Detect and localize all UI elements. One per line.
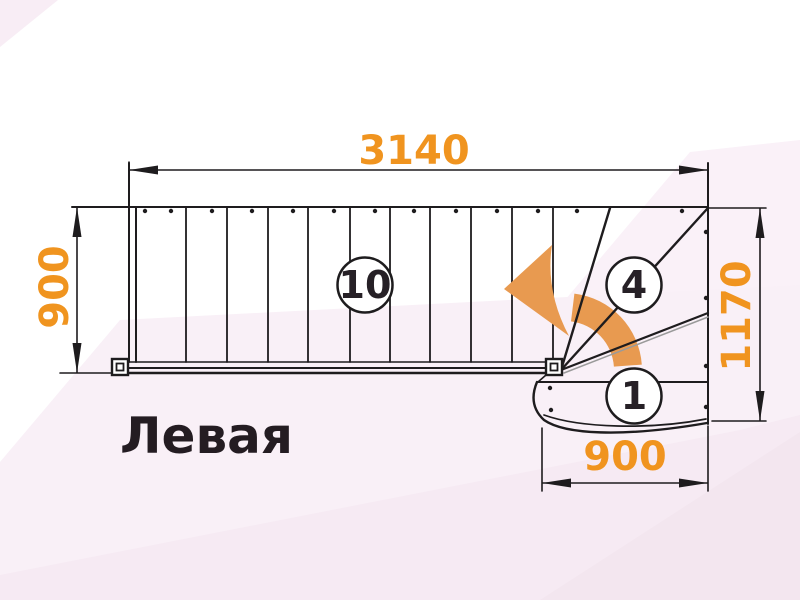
dimension-left-arrow-top [73,207,82,237]
dimension-bottom-value: 900 [583,434,667,480]
left-newel-post-inner [117,364,124,371]
dimension-right-value: 1170 [714,260,760,371]
stair-orientation-title: Левая [120,407,293,465]
dimension-top-arrow-left [129,166,158,175]
dimension-left-value: 900 [32,245,78,329]
marker-straight-flight: 10 [338,258,393,313]
marker-first-step: 1 [607,369,662,424]
marker-straight-flight-label: 10 [339,263,392,307]
facet-right-wedge [565,140,800,300]
marker-winder-steps: 4 [607,258,662,313]
dimension-top: 3140 [129,128,708,207]
pivot-newel-post-inner [551,364,558,371]
background-facets [0,0,800,600]
dimension-top-value: 3140 [358,128,469,174]
facet-top-left [0,0,58,47]
marker-winder-steps-label: 4 [621,263,647,307]
stair-plan-drawing: 10 4 1 3140 900 [0,0,800,600]
marker-first-step-label: 1 [621,374,647,418]
stair-plan-page: 10 4 1 3140 900 [0,0,800,600]
